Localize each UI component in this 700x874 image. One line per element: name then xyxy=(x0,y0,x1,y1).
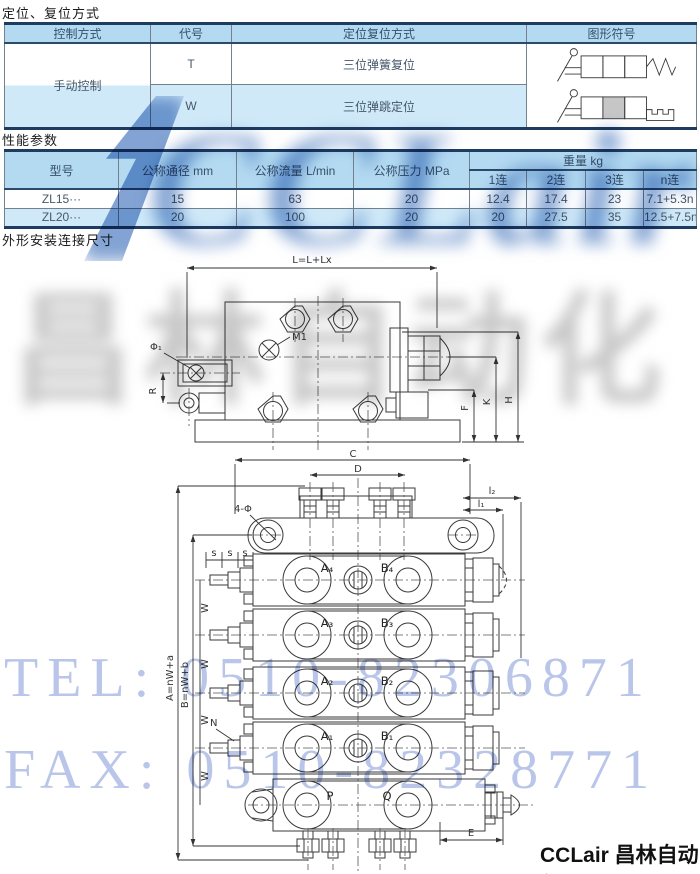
dim-label-w: W xyxy=(200,603,211,613)
spring-icon xyxy=(646,59,675,75)
three-position-detent-symbol xyxy=(546,86,678,126)
lever-knob-icon xyxy=(570,90,577,97)
port-label-a2: A₂ xyxy=(321,674,333,688)
port-label-q: Q xyxy=(382,789,391,803)
col-header-flow: 公称流量 L/min xyxy=(237,151,354,190)
col-header-weight-3: 3连 xyxy=(586,170,644,189)
section-title-performance: 性能参数 xyxy=(2,130,58,149)
cell-model: ZL20··· xyxy=(5,208,119,227)
dim-label-s: s xyxy=(227,548,232,559)
dim-label-b-formula: B=nW+b xyxy=(180,662,191,708)
section-title-dimensions: 外形安装连接尺寸 xyxy=(2,230,114,249)
dim-label-m1: M1 xyxy=(292,332,307,343)
dim-label-length: L=L+Lx xyxy=(292,255,331,266)
dim-label-h: H xyxy=(504,396,515,404)
centerlines xyxy=(195,478,535,872)
table-row: ZL15··· 15 63 20 12.4 17.4 23 7.1+5.3n xyxy=(5,189,697,208)
dim-label-w: W xyxy=(200,771,211,781)
positioning-header-row: 控制方式 代号 定位复位方式 图形符号 xyxy=(5,24,697,44)
port-label-p: P xyxy=(327,789,334,803)
cell-control-method: 手动控制 xyxy=(5,43,151,129)
lever-knob-icon xyxy=(570,49,577,56)
cell-weight-1: 20 xyxy=(470,208,527,227)
dim-label-l2: l₂ xyxy=(489,486,496,497)
side-view-drawing: L=L+Lx M1 Φ₁ R H K F xyxy=(140,250,570,455)
dim-label-s: s xyxy=(211,548,216,559)
port-labels: A₄ B₄ A₃ B₃ A₂ B₂ A₁ B₁ P Q xyxy=(321,561,394,803)
port-label-a4: A₄ xyxy=(321,561,334,575)
cell-model: ZL15··· xyxy=(5,189,119,208)
dim-label-k: K xyxy=(482,398,493,405)
dim-label-e: E xyxy=(468,828,474,839)
section-title-positioning: 定位、复位方式 xyxy=(2,3,100,22)
performance-table: 型号 公称通径 mm 公称流量 L/min 公称压力 MPa 重量 kg 1连 … xyxy=(4,149,697,229)
col-header-weight-n: n连 xyxy=(644,170,697,189)
dim-label-s: s xyxy=(242,548,247,559)
dim-label-c: C xyxy=(350,449,357,460)
three-position-spring-return-symbol xyxy=(546,45,678,85)
col-header-symbol: 图形符号 xyxy=(527,24,697,44)
top-plate xyxy=(248,482,494,560)
dim-label-d: D xyxy=(354,464,362,475)
dim-label-l1: l₁ xyxy=(478,499,485,510)
detent-icon xyxy=(646,110,673,121)
top-studs xyxy=(299,488,415,518)
cell-weight-n: 12.5+7.5n xyxy=(644,208,697,227)
cell-diameter: 20 xyxy=(119,208,237,227)
port-label-a1: A₁ xyxy=(321,729,333,743)
cell-method-t: 三位弹簧复位 xyxy=(232,43,527,85)
dim-label-phi1: Φ₁ xyxy=(150,342,162,353)
valve-body-side xyxy=(178,302,460,442)
cell-code-w: W xyxy=(151,85,232,129)
col-header-control-method: 控制方式 xyxy=(5,24,151,44)
cell-weight-2: 27.5 xyxy=(527,208,586,227)
col-header-weight-group: 重量 kg xyxy=(470,151,697,171)
col-header-model: 型号 xyxy=(5,151,119,190)
cell-symbols xyxy=(527,43,697,129)
col-header-weight-2: 2连 xyxy=(527,170,586,189)
col-header-diameter: 公称通径 mm xyxy=(119,151,237,190)
handle-bracket xyxy=(390,328,408,392)
dimension-annotations: C D 4-Φ l₂ l₁ A=nW+a B=nW+b W W W W s xyxy=(165,449,521,860)
cell-weight-3: 23 xyxy=(586,189,644,208)
cell-weight-n: 7.1+5.3n xyxy=(644,189,697,208)
cell-weight-2: 17.4 xyxy=(527,189,586,208)
dim-label-a-formula: A=nW+a xyxy=(165,655,176,701)
table-row: 手动控制 T 三位弹簧复位 xyxy=(5,43,697,85)
performance-header-row-1: 型号 公称通径 mm 公称流量 L/min 公称压力 MPa 重量 kg xyxy=(5,151,697,171)
port-label-b3: B₃ xyxy=(381,616,394,630)
cell-flow: 100 xyxy=(237,208,354,227)
col-header-code: 代号 xyxy=(151,24,232,44)
port-label-b4: B₄ xyxy=(381,561,394,575)
dim-label-w: W xyxy=(200,659,211,669)
cell-pressure: 20 xyxy=(354,189,470,208)
dim-label-four-phi: 4-Φ xyxy=(234,504,252,515)
col-header-weight-1: 1连 xyxy=(470,170,527,189)
cell-pressure: 20 xyxy=(354,208,470,227)
dimension-annotations: L=L+Lx M1 Φ₁ R H K F xyxy=(148,255,524,442)
cell-code-t: T xyxy=(151,43,232,85)
port-label-a3: A₃ xyxy=(321,616,334,630)
positioning-table: 控制方式 代号 定位复位方式 图形符号 手动控制 T 三位弹簧复位 xyxy=(4,22,697,130)
dim-label-f: F xyxy=(460,405,471,411)
footer-brand: CCLair 昌林自动化 xyxy=(540,839,700,874)
front-view-drawing: A₄ B₄ A₃ B₃ A₂ B₂ A₁ B₁ P Q C D 4-Φ l₂ l… xyxy=(140,448,660,874)
datasheet-page: CCLair 昌林自动化 TEL: 0510-82306871 FAX: 051… xyxy=(0,0,700,874)
cell-diameter: 15 xyxy=(119,189,237,208)
table-row: ZL20··· 20 100 20 20 27.5 35 12.5+7.5n xyxy=(5,208,697,227)
bottom-studs xyxy=(297,831,416,858)
col-header-reset-method: 定位复位方式 xyxy=(232,24,527,44)
cell-flow: 63 xyxy=(237,189,354,208)
cell-method-w: 三位弹跳定位 xyxy=(232,85,527,129)
port-label-b2: B₂ xyxy=(381,674,394,688)
centerlines xyxy=(160,296,472,450)
dim-label-n: N xyxy=(210,718,217,729)
col-header-pressure: 公称压力 MPa xyxy=(354,151,470,190)
cell-weight-3: 35 xyxy=(586,208,644,227)
cell-weight-1: 12.4 xyxy=(470,189,527,208)
dim-label-r: R xyxy=(148,387,159,394)
port-label-b1: B₁ xyxy=(381,729,394,743)
